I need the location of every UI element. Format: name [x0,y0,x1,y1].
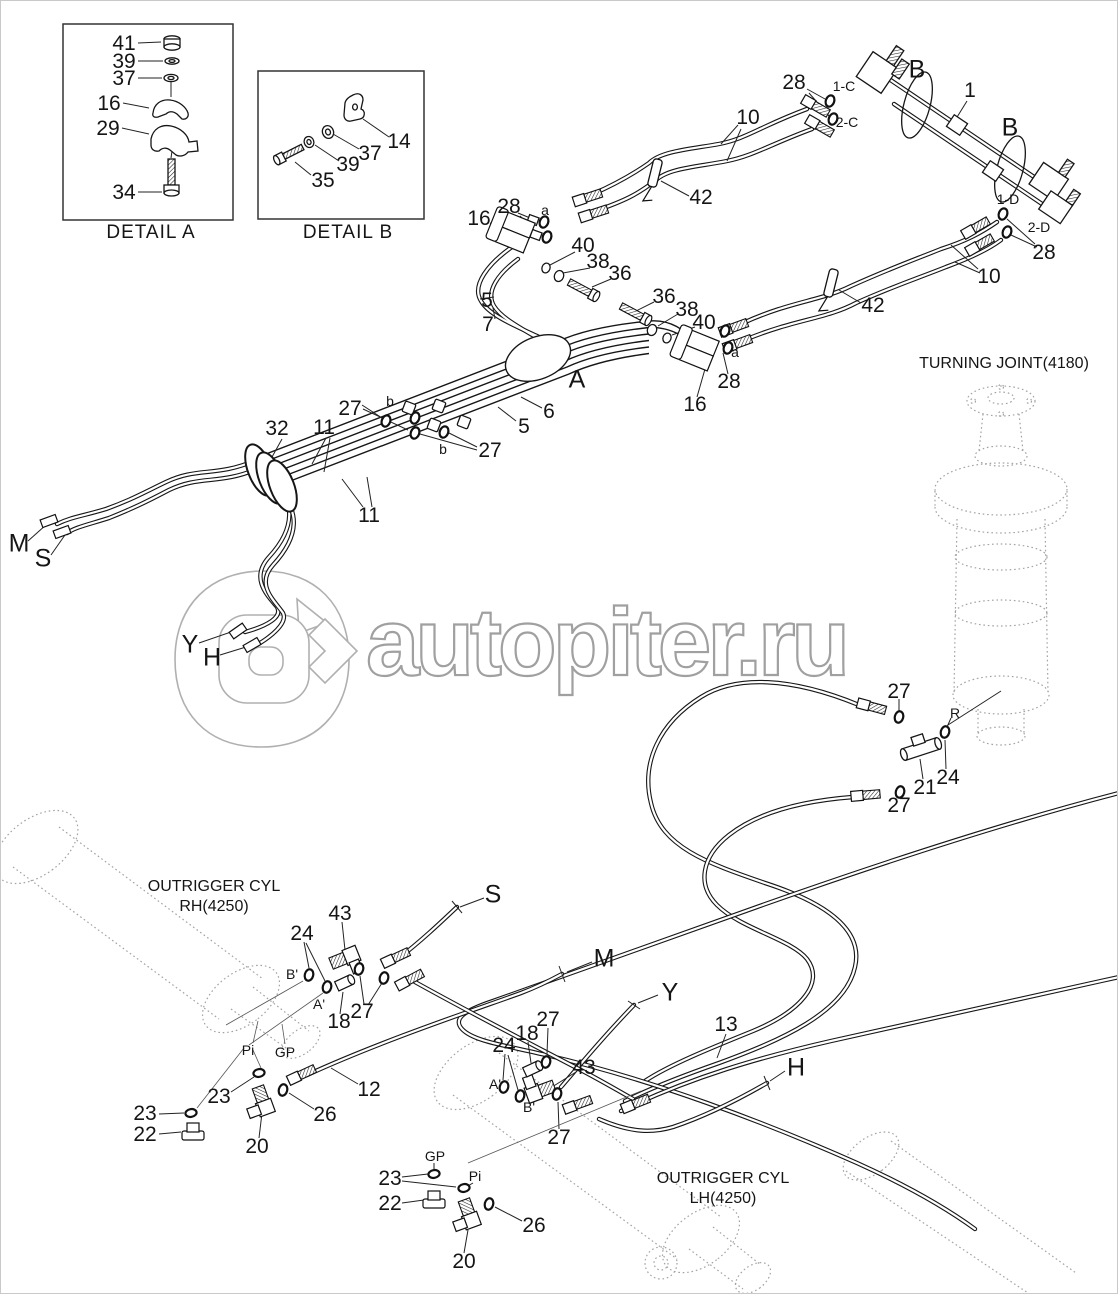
callout-27: 27 [887,794,910,818]
callout-27: 27 [338,397,361,421]
callout-37: 37 [112,67,135,91]
callout-14: 14 [387,130,410,154]
callout-32: 32 [265,417,288,441]
callout-5: 5 [518,415,530,439]
callout-23: 23 [378,1167,401,1191]
callout-27: 27 [536,1008,559,1032]
callout-a: a [731,344,739,360]
callout-24: 24 [492,1034,515,1058]
callout-1-d: 1-D [997,191,1020,207]
callout-27: 27 [350,1000,373,1024]
callout-a: a [541,202,549,218]
callout-a: A [569,366,586,395]
callout-1: 1 [964,79,976,103]
callout-11: 11 [313,416,335,440]
callout-pi: Pi [469,1168,481,1184]
callout-outrigger-cyl: OUTRIGGER CYL [657,1170,789,1188]
callout-36: 36 [608,262,631,286]
callout-b-: B' [523,1099,535,1115]
callout-20: 20 [245,1135,268,1159]
callout-43: 43 [328,902,351,926]
callout-20: 20 [452,1250,475,1274]
callout-37: 37 [358,142,381,166]
callout-detail-a: DETAIL A [106,222,195,244]
callout-26: 26 [313,1103,336,1127]
callout-39: 39 [336,153,359,177]
callout-26: 26 [522,1214,545,1238]
callout-35: 35 [311,169,334,193]
callout-turning-joint-4180-: TURNING JOINT(4180) [919,355,1089,373]
callout-34: 34 [112,181,135,205]
callout-detail-b: DETAIL B [303,222,393,244]
callout-m: M [9,530,30,559]
callout-2-d: 2-D [1028,219,1051,235]
callout-5: 5 [481,289,493,313]
callout-16: 16 [467,207,490,231]
callout-43: 43 [572,1056,595,1080]
callout-h: H [203,644,221,673]
callout-6: 6 [543,400,555,424]
callout-b: b [386,393,394,409]
callout-rh-4250-: RH(4250) [179,898,248,916]
callout-42: 42 [689,186,712,210]
callout-2-c: 2-C [836,114,859,130]
callout-s: S [485,881,502,910]
callout-24: 24 [290,922,313,946]
callout-24: 24 [936,766,959,790]
callout-7: 7 [482,313,494,337]
callout-28: 28 [1032,241,1055,265]
callout-28: 28 [717,370,740,394]
callout-27: 27 [887,680,910,704]
callout-27: 27 [478,439,501,463]
callout-pi: Pi [242,1042,254,1058]
callout-36: 36 [652,285,675,309]
callout-a-: A' [313,996,325,1012]
callout-outrigger-cyl: OUTRIGGER CYL [148,878,280,896]
callout-22: 22 [133,1123,156,1147]
callout-s: S [35,545,52,574]
callout-y: Y [662,979,679,1008]
callout-28: 28 [782,71,805,95]
callout-b: B [1002,114,1019,143]
callout-21: 21 [913,776,936,800]
callout-1-c: 1-C [833,78,856,94]
callout-gp: GP [275,1044,295,1060]
callout-18: 18 [327,1010,350,1034]
callout-lh-4250-: LH(4250) [690,1190,757,1208]
callout-18: 18 [515,1022,538,1046]
callout-b-: B' [286,966,298,982]
callout-29: 29 [96,117,119,141]
parts-diagram-page: autopiter.ru [0,0,1118,1294]
callout-42: 42 [861,294,884,318]
callout-m: M [594,945,615,974]
callout-10: 10 [977,265,1000,289]
callout-10: 10 [736,106,759,130]
callout-r: R [950,705,960,721]
callout-11: 11 [358,504,380,528]
callout-16: 16 [97,92,120,116]
callout-16: 16 [683,393,706,417]
callout-22: 22 [378,1192,401,1216]
callout-b: B [909,56,926,85]
callout-28: 28 [497,195,520,219]
callout-13: 13 [714,1013,737,1037]
callout-y: Y [182,631,199,660]
callout-12: 12 [357,1078,380,1102]
callout-23: 23 [207,1085,230,1109]
callout-b: b [439,441,447,457]
callout-40: 40 [692,311,715,335]
callout-27: 27 [547,1126,570,1150]
callout-a-: A' [489,1076,501,1092]
callout-h: H [787,1054,805,1083]
callout-gp: GP [425,1148,445,1164]
callout-38: 38 [586,250,609,274]
callout-layer: 413937162934DETAIL A14373935DETAIL B281-… [1,1,1117,1293]
